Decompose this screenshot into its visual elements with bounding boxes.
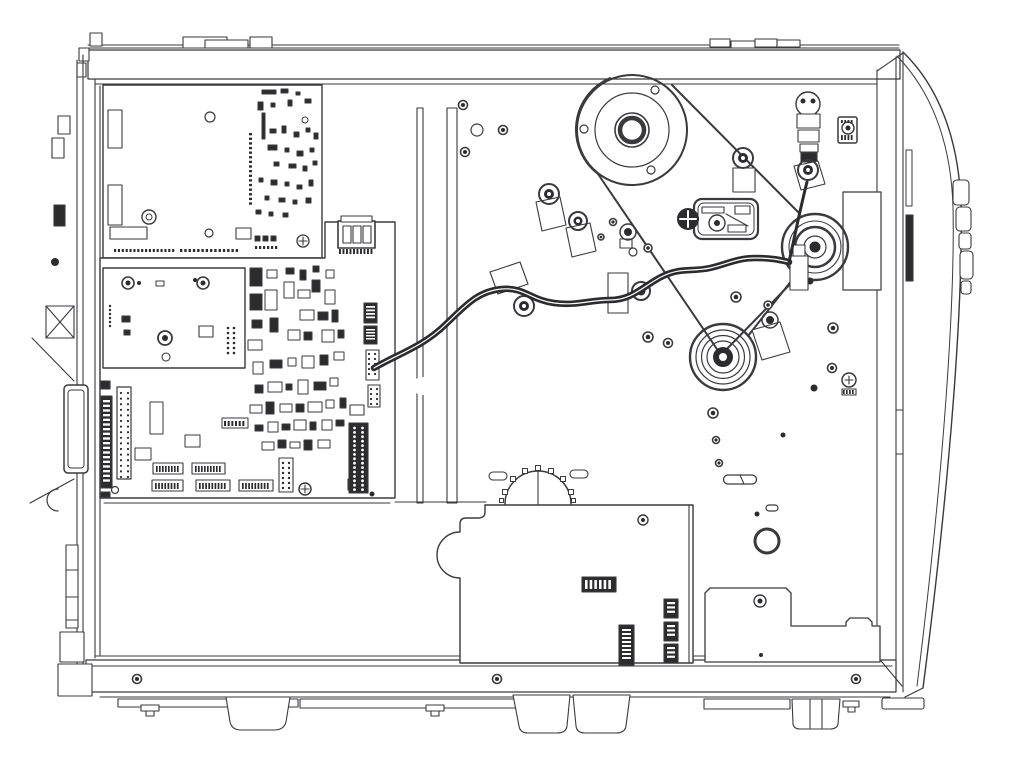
daughter-board <box>103 268 245 368</box>
psu-enclosure <box>395 466 693 666</box>
gear-module <box>677 199 758 239</box>
sensor-block <box>838 117 857 143</box>
printer-internals-diagram: Technical line diagram: printer chassis … <box>0 0 1024 768</box>
bearings-and-rollers <box>490 148 808 360</box>
center-strips <box>413 108 457 503</box>
diagram-canvas <box>0 0 1024 768</box>
bottom-right-plate <box>705 588 880 662</box>
front-bezel <box>897 52 973 697</box>
feet <box>118 695 924 733</box>
upper-pcb <box>103 85 322 278</box>
ribbon-tensioner <box>794 92 825 190</box>
